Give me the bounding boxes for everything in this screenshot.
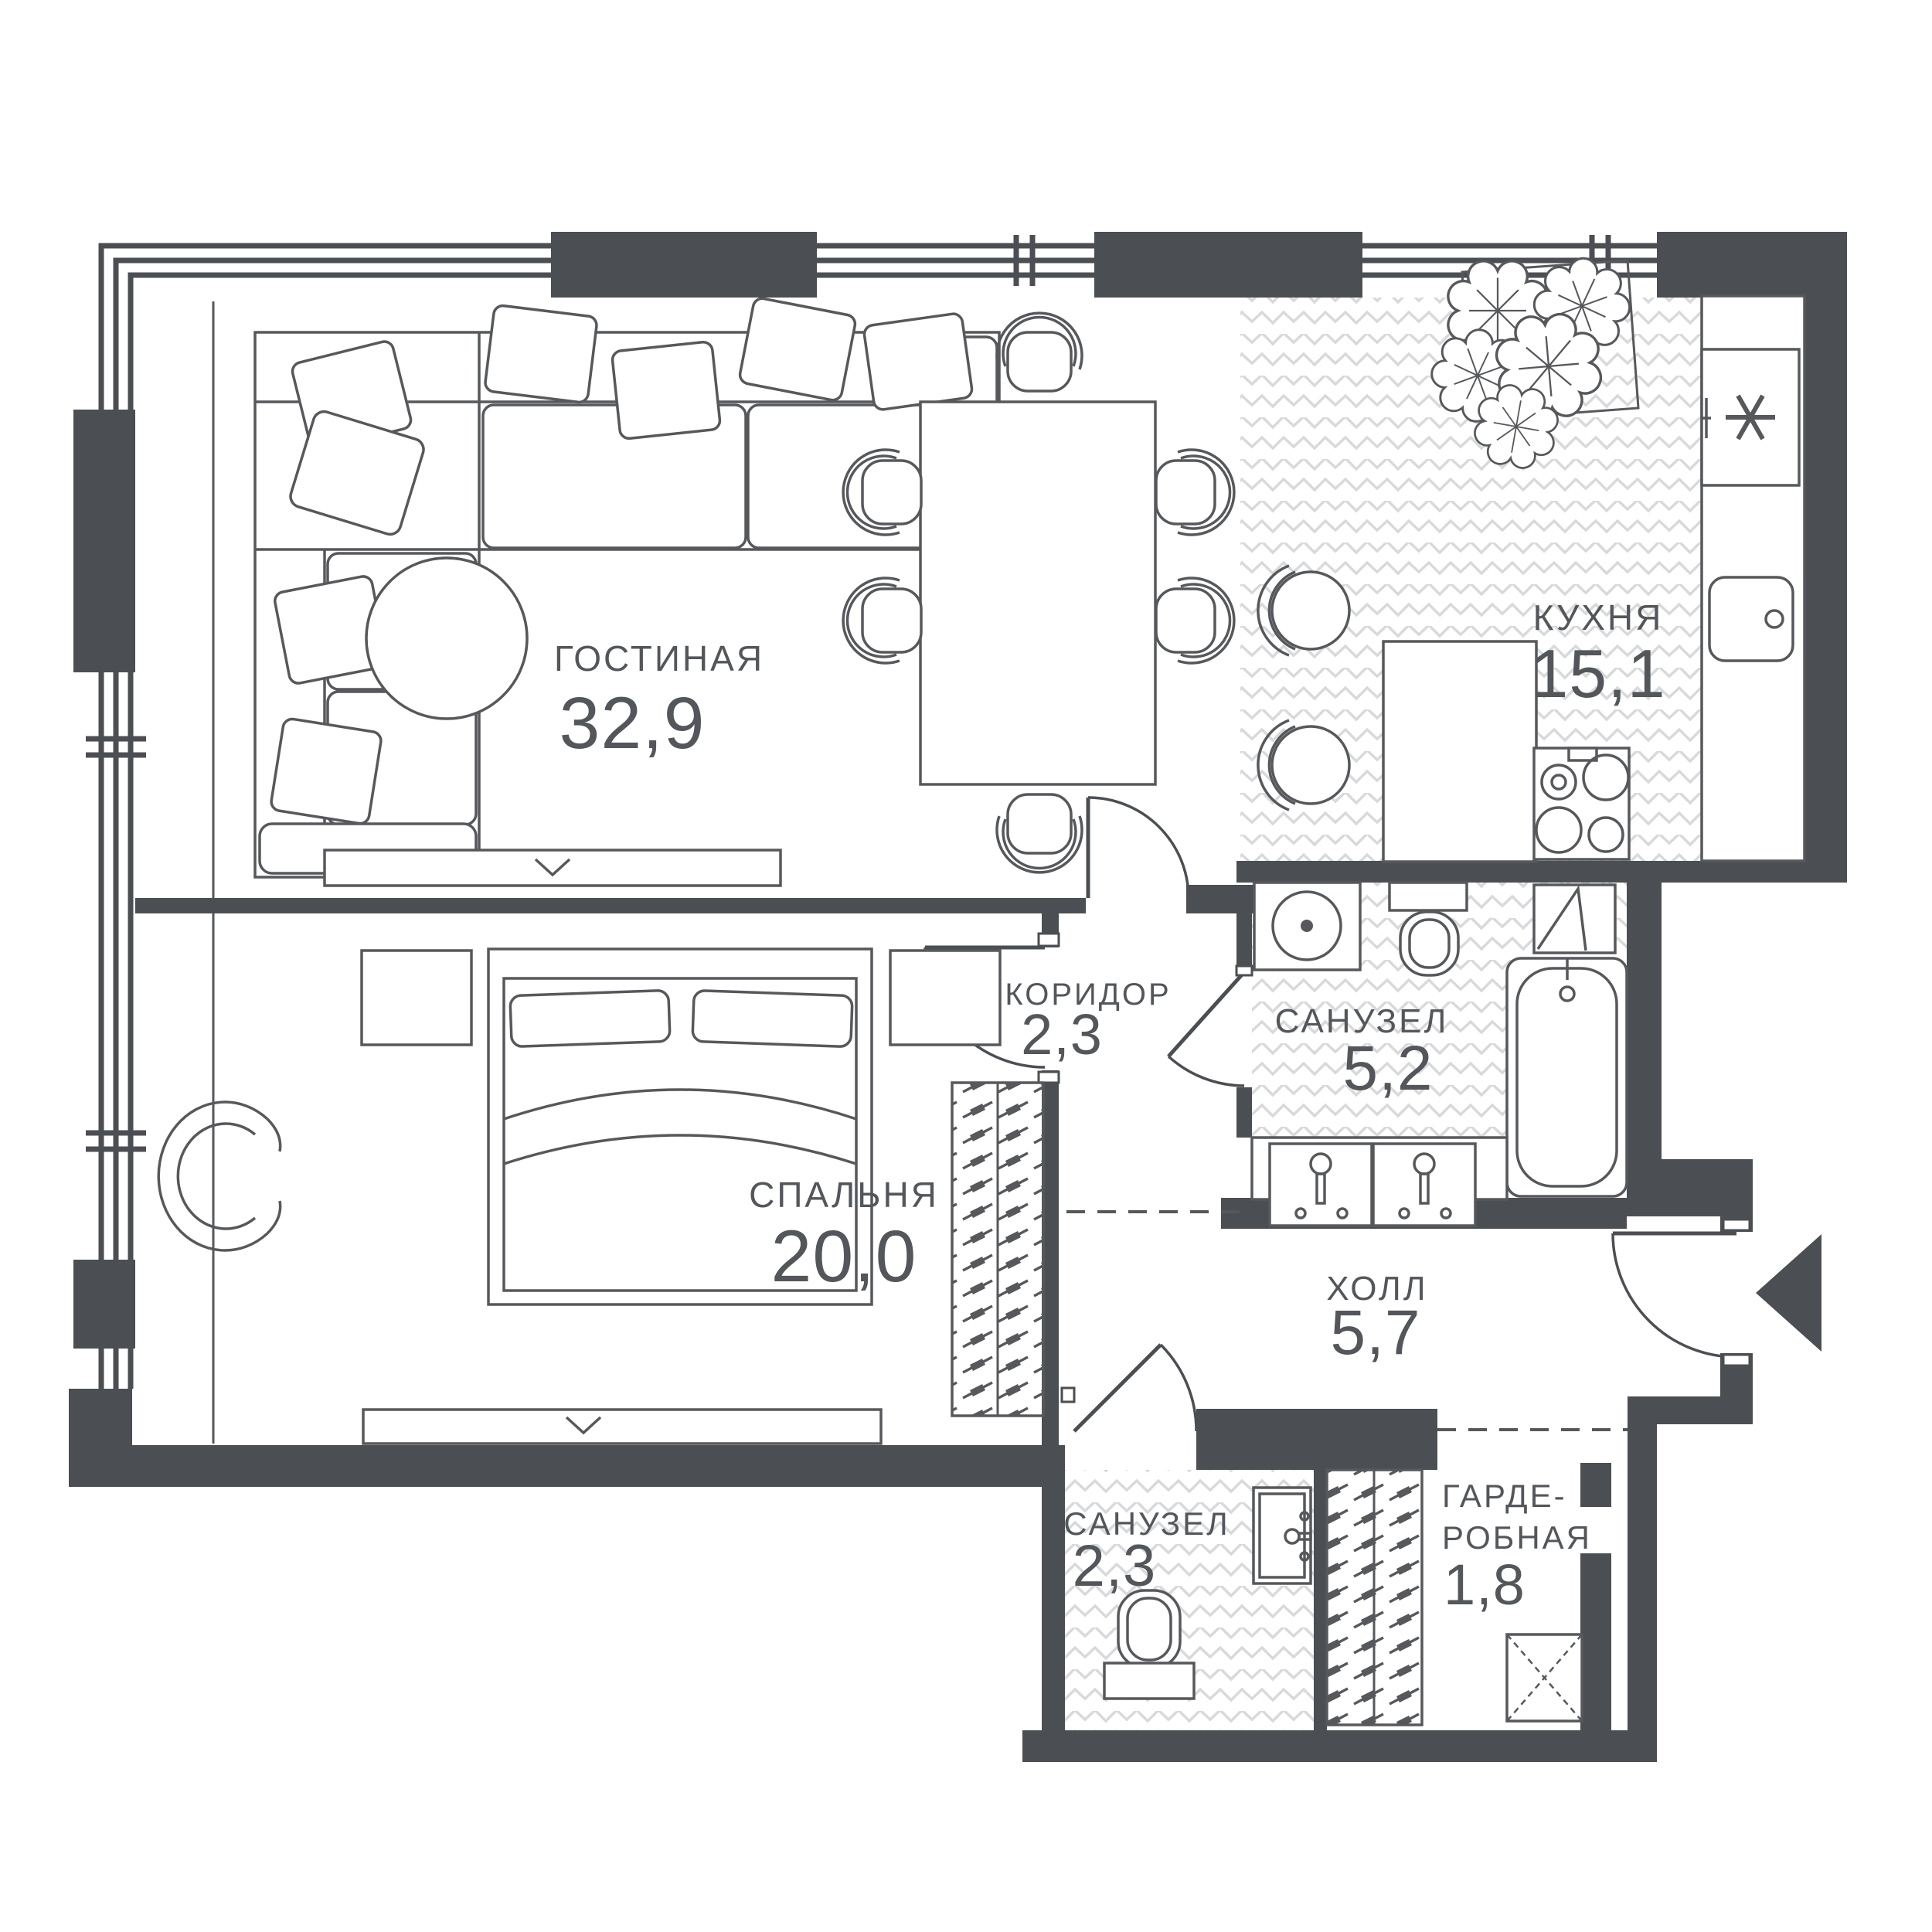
tv-console-icon	[363, 1410, 881, 1444]
fridge-icon	[1702, 349, 1799, 485]
wall	[73, 410, 135, 672]
armchair-icon	[158, 1102, 280, 1250]
tv-console-icon	[325, 850, 781, 886]
floor-plan: ГОСТИНАЯ 32,9 КУХНЯ 15,1 КОРИДОР 2,3 САН…	[0, 0, 1932, 1932]
stove-icon	[1534, 748, 1629, 859]
area-label: 1,8	[1444, 1553, 1526, 1617]
door-arc-icon	[1168, 972, 1244, 1086]
dining-table-icon	[920, 402, 1155, 784]
washing-machine-icon	[1254, 883, 1360, 970]
door-arc-icon	[1088, 798, 1189, 898]
wall	[1627, 1159, 1753, 1216]
wall	[135, 898, 1086, 913]
coffee-table-icon	[366, 558, 527, 719]
wall	[69, 1389, 132, 1487]
wall	[551, 232, 817, 298]
wall	[1236, 1087, 1252, 1138]
wall	[1094, 232, 1362, 298]
area-label: 2,3	[1021, 1002, 1103, 1066]
wall	[73, 1260, 135, 1349]
dining-chair-icon	[843, 578, 921, 663]
dining-chair-icon	[997, 794, 1082, 872]
entry-door-arc-icon	[1613, 1233, 1736, 1357]
wall	[1580, 1463, 1611, 1507]
wall	[1236, 861, 1847, 883]
wall	[1804, 232, 1847, 883]
room-label: ГОСТИНАЯ	[554, 638, 764, 679]
area-label: 15,1	[1530, 635, 1665, 712]
kitchen-sink-icon	[1709, 577, 1793, 661]
wall	[1628, 1396, 1753, 1424]
wall	[1628, 1424, 1657, 1762]
wall	[1186, 885, 1258, 913]
room-label: РОБНАЯ	[1442, 1519, 1592, 1556]
wall	[1314, 1470, 1327, 1731]
kitchen-island-icon	[1383, 641, 1536, 862]
area-label: 32,9	[560, 682, 706, 764]
wardrobe-rack-icon	[952, 1083, 1043, 1416]
wall	[1022, 1730, 1657, 1762]
washbasin-icon	[1252, 1138, 1507, 1226]
area-label: 20,0	[771, 1216, 917, 1298]
door-arc-icon	[1074, 1345, 1196, 1431]
area-label: 5,7	[1331, 1298, 1421, 1368]
dining-chair-icon	[1156, 578, 1234, 663]
nightstand-icon	[362, 951, 471, 1045]
shelf-icon	[1507, 1634, 1582, 1721]
wall	[1627, 883, 1662, 1159]
wall	[1236, 913, 1252, 972]
room-label: СПАЛЬНЯ	[749, 1175, 939, 1215]
washbasin-icon	[1253, 1488, 1311, 1583]
room-label: КУХНЯ	[1533, 597, 1664, 638]
duct-icon	[1534, 885, 1615, 953]
nightstand-icon	[890, 951, 1000, 1045]
floor-plan-drawing: ГОСТИНАЯ 32,9 КУХНЯ 15,1 КОРИДОР 2,3 САН…	[0, 0, 1932, 1932]
wall	[1196, 1409, 1437, 1470]
room-label: ГАРДЕ-	[1442, 1478, 1567, 1514]
hall-closet-icon	[1327, 1470, 1422, 1725]
entry-arrow-icon	[1756, 1234, 1821, 1352]
bathtub-icon	[1507, 958, 1627, 1196]
wall	[1580, 1553, 1611, 1731]
dining-chair-icon	[1156, 450, 1234, 535]
dining-chair-icon	[997, 313, 1082, 391]
area-label: 5,2	[1343, 1033, 1434, 1104]
wall	[132, 1445, 1065, 1487]
wall	[1042, 1445, 1065, 1730]
area-label: 2,3	[1073, 1533, 1157, 1599]
